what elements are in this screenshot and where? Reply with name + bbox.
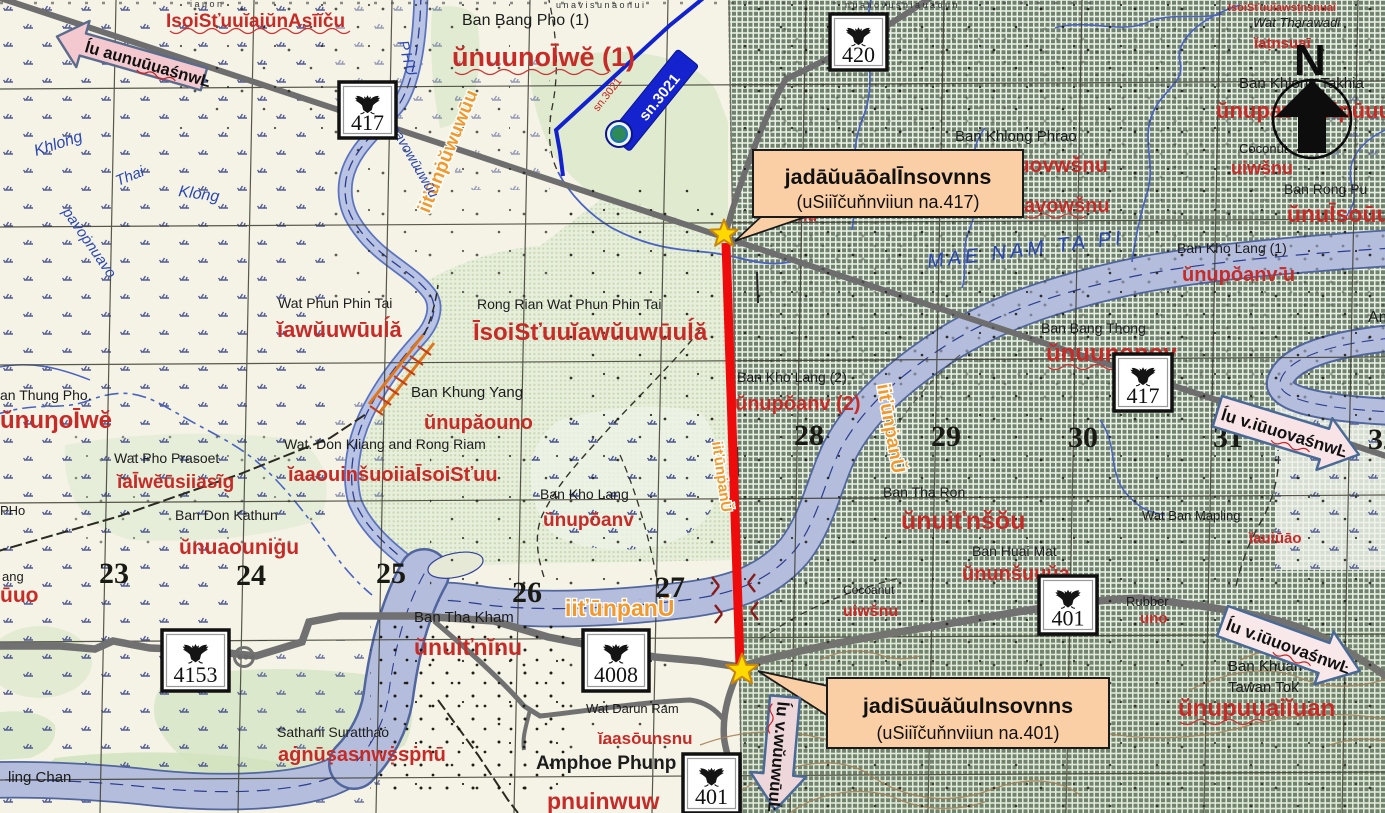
svg-text:i a u o n: i a u o n [190, 0, 222, 9]
svg-text:ŭnupuuaiĭuan: ŭnupuuaiĭuan [1178, 695, 1335, 722]
svg-text:ĭaĪwĕūsiiasĩg: ĭaĪwĕūsiiasĩg [116, 472, 234, 493]
svg-text:ŭnuiťnĭnu: ŭnuiťnĭnu [414, 634, 522, 660]
svg-text:27: 27 [655, 571, 685, 604]
svg-text:417: 417 [1127, 383, 1160, 408]
svg-text:IsoiSťuuĭaiŭnAsīĭču: IsoiSťuuĭaiŭnAsīĭču [166, 11, 345, 32]
svg-text:Tawan Tok: Tawan Tok [1228, 679, 1299, 696]
svg-text:N: N [1294, 36, 1326, 85]
svg-text:23: 23 [99, 557, 129, 590]
svg-text:Ban Khlong Phrao: Ban Khlong Phrao [955, 128, 1077, 145]
svg-text:417: 417 [351, 110, 384, 135]
svg-text:ĭawŭuwūuĺă: ĭawŭuwūuĺă [276, 316, 402, 342]
svg-text:4153: 4153 [174, 662, 218, 687]
svg-text:30: 30 [1068, 421, 1098, 454]
svg-text:401: 401 [695, 784, 728, 809]
svg-text:24: 24 [236, 559, 266, 592]
svg-text:ŭnupăouno: ŭnupăouno [424, 412, 533, 434]
svg-text:aġnūṣasnwṩsṗnū: aġnūṣasnwṩsṗnū [278, 744, 446, 766]
svg-text:Ban Bang Pho (1): Ban Bang Pho (1) [462, 12, 589, 29]
svg-text:Ban Huai Mat: Ban Huai Mat [972, 543, 1057, 559]
svg-text:ĭaaouinšuoiiaĪsoiSťuu: ĭaaouinšuoiiaĪsoiSťuu [287, 464, 498, 486]
svg-text:Wat Darun Ram: Wat Darun Ram [586, 701, 679, 716]
svg-text:ang: ang [2, 569, 24, 584]
svg-text:ŭnuŋoĪwĕ: ŭnuŋoĪwĕ [0, 407, 112, 434]
svg-text:ŭnuunoĪwĕ (1): ŭnuunoĪwĕ (1) [452, 42, 635, 72]
svg-text:29: 29 [931, 420, 961, 453]
svg-text:uiwšnu: uiwšnu [843, 603, 898, 620]
svg-text:4008: 4008 [594, 662, 638, 687]
svg-text:ūuo: ūuo [0, 584, 38, 607]
svg-text:ĭauiūāo: ĭauiūāo [1248, 530, 1302, 547]
svg-text:jadāŭuāōalĪnsovnns: jadāŭuāōalĪnsovnns [784, 165, 992, 189]
svg-text:420: 420 [842, 42, 875, 67]
svg-text:Ban Tha Kham: Ban Tha Kham [414, 609, 514, 626]
svg-text:Wat Tharawadi: Wat Tharawadi [1253, 15, 1341, 30]
svg-text:Ban Bang Thong: Ban Bang Thong [1041, 320, 1146, 336]
svg-text:ĪsoiSťuuĭawŭuwūuĺă: ĪsoiSťuuĭawŭuwūuĺă [472, 317, 708, 346]
svg-text:Sathani Suratthaȯ: Sathani Suratthaȯ [277, 724, 389, 740]
svg-text:ŭnupŏanv⸱̄u: ŭnupŏanv⸱̄u [1182, 264, 1295, 286]
svg-text:uiwšnu: uiwšnu [1231, 158, 1293, 178]
svg-text:Ban Kho Lang (2): Ban Kho Lang (2) [737, 369, 847, 385]
svg-text:uno: uno [1140, 610, 1168, 627]
svg-text:n u a ii o v u s n i a u a o u: n u a ii o v u s n i a u a o u n [845, 0, 958, 10]
svg-text:Cocoanut: Cocoanut [843, 583, 895, 597]
svg-text:401: 401 [1052, 606, 1085, 631]
svg-text:ŭnupŏanv (2): ŭnupŏanv (2) [735, 393, 861, 415]
svg-text:Rubber: Rubber [1126, 594, 1169, 609]
svg-text:(uSiiĭčuňnviiun na.401): (uSiiĭčuňnviiun na.401) [876, 723, 1059, 743]
svg-text:Ban Rong Pu: Ban Rong Pu [1284, 181, 1367, 197]
svg-text:ĭaasōunsnu: ĭaasōunsnu [597, 729, 692, 748]
svg-text:ŭnuaouniġu: ŭnuaouniġu [179, 536, 299, 559]
svg-text:Amphoe Phunp: Amphoe Phunp [536, 753, 676, 774]
svg-text:Ban Kho Lang: Ban Kho Lang [540, 486, 629, 502]
svg-text:IsoiSťuuĭawsṭnsnuaī: IsoiSťuuĭawsṭnsnuaī [1228, 2, 1337, 14]
svg-text:28: 28 [794, 419, 824, 452]
svg-text:Ban Khung Yang: Ban Khung Yang [411, 384, 523, 401]
svg-text:ŭnupŏanv: ŭnupŏanv [543, 510, 634, 531]
svg-text:Ban Kho Lang (1): Ban Kho Lang (1) [1177, 240, 1287, 256]
svg-text:Wat Phun Phin Tai: Wat Phun Phin Tai [278, 295, 392, 311]
svg-text:32: 32 [1368, 423, 1385, 456]
svg-text:Am: Am [1368, 309, 1385, 326]
svg-text:(uSiiĭčuňnviiun na.417): (uSiiĭčuňnviiun na.417) [796, 192, 979, 212]
svg-text:Ban Don Kathun: Ban Don Kathun [175, 507, 278, 523]
svg-text:PHo: PHo [0, 503, 25, 518]
svg-text:ling Chan: ling Chan [8, 769, 71, 786]
svg-text:25: 25 [376, 557, 406, 590]
svg-text:jadiSūuăŭulnsovnns: jadiSūuăŭulnsovnns [862, 694, 1073, 718]
svg-text:an Thung Pho.: an Thung Pho. [0, 387, 92, 403]
svg-text:u n a v i s u n a o n u i: u n a v i s u n a o n u i [556, 0, 644, 10]
svg-text:ŭnuiťnšŏu: ŭnuiťnšŏu [901, 507, 1025, 535]
svg-text:Ban Tha Ron: Ban Tha Ron [883, 484, 965, 500]
svg-text:ŭnuĪsoūu: ŭnuĪsoūu [1287, 201, 1385, 227]
svg-text:Rong Rian Wat Phun Phin Tai: Rong Rian Wat Phun Phin Tai [477, 296, 661, 312]
svg-text:26: 26 [512, 576, 542, 609]
svg-text:pnuinwuw: pnuinwuw [547, 788, 660, 813]
svg-text:Wat Ban Mapling: Wat Ban Mapling [1142, 508, 1241, 523]
svg-text:Wat. Don Kliang and Rong Riam: Wat. Don Kliang and Rong Riam [284, 436, 486, 452]
svg-text:Wat Pho Prasoet: Wat Pho Prasoet [114, 450, 219, 466]
